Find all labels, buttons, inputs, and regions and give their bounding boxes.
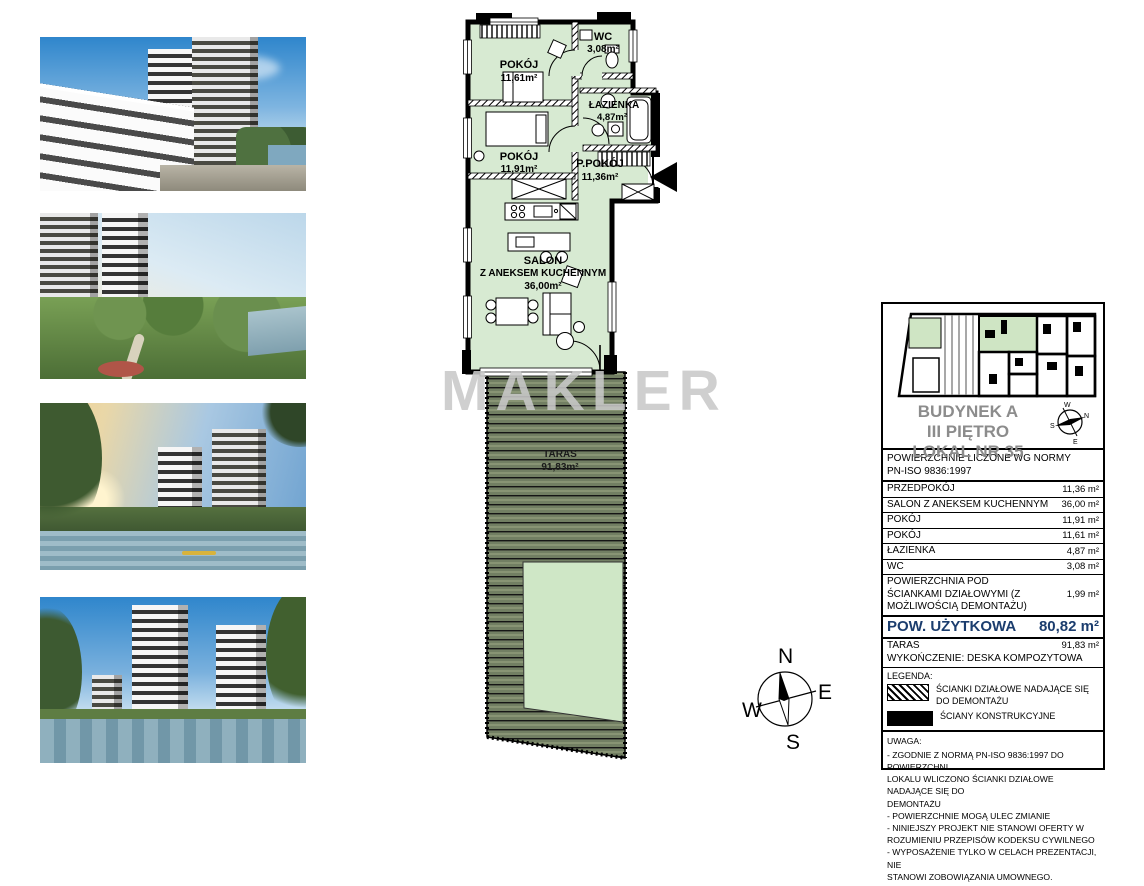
room-label-taras: TARAS [543, 449, 577, 460]
kayak [182, 551, 216, 555]
area-row-label: POWIERZCHNIA POD ŚCIANKAMI DZIAŁOWYMI (Z… [887, 576, 1037, 614]
terrace-planter [523, 562, 623, 722]
legend-item-structural: ŚCIANY KONSTRUKCYJNE [940, 711, 1055, 723]
flyer-page: { "watermark": "MAKLER", "plan": { "room… [0, 0, 1144, 781]
mini-compass-n: N [1084, 413, 1089, 420]
building [102, 213, 148, 299]
room-label-salon: SALON [524, 255, 563, 267]
notes-title: UWAGA: [887, 735, 1099, 747]
area-row: ŁAZIENKA 4,87 m² [883, 543, 1103, 559]
notes-body: - ZGODNIE Z NORMĄ PN-ISO 9836:1997 DO PO… [887, 749, 1099, 883]
room-area-taras: 91,83m² [541, 462, 579, 473]
watermark: MAKLER [441, 358, 727, 424]
compass-w-label: W [742, 699, 762, 722]
water [40, 531, 306, 570]
room-label-lazienka: ŁAZIENKA [589, 100, 640, 111]
area-row-value: 11,36 m² [1058, 484, 1099, 495]
room-area-wc: 3,08m² [587, 44, 619, 55]
mini-compass-w: W [1064, 402, 1071, 409]
compass-s-label: S [786, 731, 800, 753]
area-row: SALON Z ANEKSEM KUCHENNYM 36,00 m² [883, 497, 1103, 513]
area-row: WC 3,08 m² [883, 559, 1103, 575]
partition-wall [580, 88, 656, 93]
total-area-label: POW. UŻYTKOWA [887, 618, 1016, 637]
panel-header: BUDYNEK A III PIĘTRO LOKAL NR 35 W N S E [883, 304, 1103, 450]
unit-title-number: LOKAL NR 35 [883, 442, 1053, 462]
legend-title: LEGENDA: [887, 671, 1099, 681]
water [248, 306, 306, 356]
legend-solid-swatch-icon [887, 711, 933, 726]
room-area-ppokoj: 11,36m² [582, 172, 619, 183]
unit-title: BUDYNEK A III PIĘTRO LOKAL NR 35 [883, 402, 1053, 462]
photo-render-2 [40, 213, 306, 379]
legend-hatch-swatch-icon [887, 684, 929, 701]
area-row-label: SALON Z ANEKSEM KUCHENNYM [887, 499, 1048, 512]
building-key-plan [889, 310, 1101, 400]
tower [216, 625, 266, 717]
area-row-value: 4,87 m² [1063, 546, 1099, 557]
legend: LEGENDA: ŚCIANKI DZIAŁOWE NADAJĄCE SIĘ D… [883, 667, 1103, 729]
room-label-pokoj2: POKÓJ [500, 150, 539, 163]
notes: UWAGA: - ZGODNIE Z NORMĄ PN-ISO 9836:199… [883, 730, 1103, 886]
total-area-row: POW. UŻYTKOWA 80,82 m² [883, 615, 1103, 638]
building [40, 213, 98, 305]
total-area-value: 80,82 m² [1035, 618, 1099, 635]
area-row-value: 36,00 m² [1058, 499, 1100, 510]
partition-wall [583, 145, 656, 151]
room-area-lazienka: 4,87m² [597, 112, 627, 123]
room-label-pokoj1: POKÓJ [500, 58, 539, 71]
room-label-ppokoj: P.POKÓJ [576, 157, 624, 170]
area-row-value: 11,61 m² [1058, 530, 1099, 541]
area-row-label: POKÓJ [887, 514, 921, 527]
mini-compass-s: S [1050, 423, 1055, 430]
water [268, 145, 306, 165]
area-row: POKÓJ 11,91 m² [883, 512, 1103, 528]
area-row-label: POKÓJ [887, 530, 921, 543]
water [40, 719, 306, 763]
unit-title-floor: III PIĘTRO [883, 422, 1053, 442]
photo-render-3 [40, 403, 306, 570]
area-row-label: ŁAZIENKA [887, 545, 935, 558]
area-row-value: 1,99 m² [1063, 589, 1099, 600]
room-area-salon: 36,00m² [524, 281, 562, 292]
room-area-pokoj1: 11,61m² [501, 73, 538, 84]
area-row-value: 11,91 m² [1058, 515, 1099, 526]
photo-render-4 [40, 597, 306, 763]
area-row: POKÓJ 11,61 m² [883, 528, 1103, 544]
terrace-row: TARAS 91,83 m² WYKOŃCZENIE: DESKA KOMPOZ… [883, 637, 1103, 667]
plaza [160, 165, 306, 191]
area-row-label: PRZEDPOKÓJ [887, 483, 955, 496]
legend-item-partition: ŚCIANKI DZIAŁOWE NADAJĄCE SIĘ DO DEMONTA… [936, 684, 1089, 707]
mini-compass-e: E [1073, 439, 1078, 446]
apartment: POKÓJ 11,61m² WC 3,08m² ŁAZIENKA 4,87m² … [462, 12, 677, 376]
compass-rose: N E W S [742, 645, 834, 753]
area-row-value: 3,08 m² [1063, 561, 1099, 572]
terrace-value: 91,83 m² [1062, 640, 1100, 651]
terrace-finish: WYKOŃCZENIE: DESKA KOMPOZYTOWA [887, 653, 1099, 664]
norm-line-2: PN-ISO 9836:1997 [887, 465, 1099, 478]
room-label-salon2: Z ANEKSEM KUCHENNYM [480, 268, 606, 279]
room-label-wc: WC [594, 31, 612, 43]
photo-render-1 [40, 37, 306, 191]
compass-n-label: N [778, 645, 793, 668]
unit-title-building: BUDYNEK A [883, 402, 1053, 422]
terrace-label: TARAS [887, 640, 920, 651]
compass-e-label: E [818, 681, 832, 704]
room-area-pokoj2: 11,91m² [501, 164, 538, 175]
playground [98, 361, 144, 377]
area-row: POWIERZCHNIA POD ŚCIANKAMI DZIAŁOWYMI (Z… [883, 574, 1103, 615]
area-row-label: WC [887, 561, 904, 574]
info-panel: BUDYNEK A III PIĘTRO LOKAL NR 35 W N S E… [881, 302, 1105, 770]
area-row: PRZEDPOKÓJ 11,36 m² [883, 480, 1103, 497]
mini-compass-icon: W N S E [1049, 400, 1093, 446]
tower [132, 605, 188, 717]
terrace: TARAS 91,83m² [487, 372, 625, 758]
